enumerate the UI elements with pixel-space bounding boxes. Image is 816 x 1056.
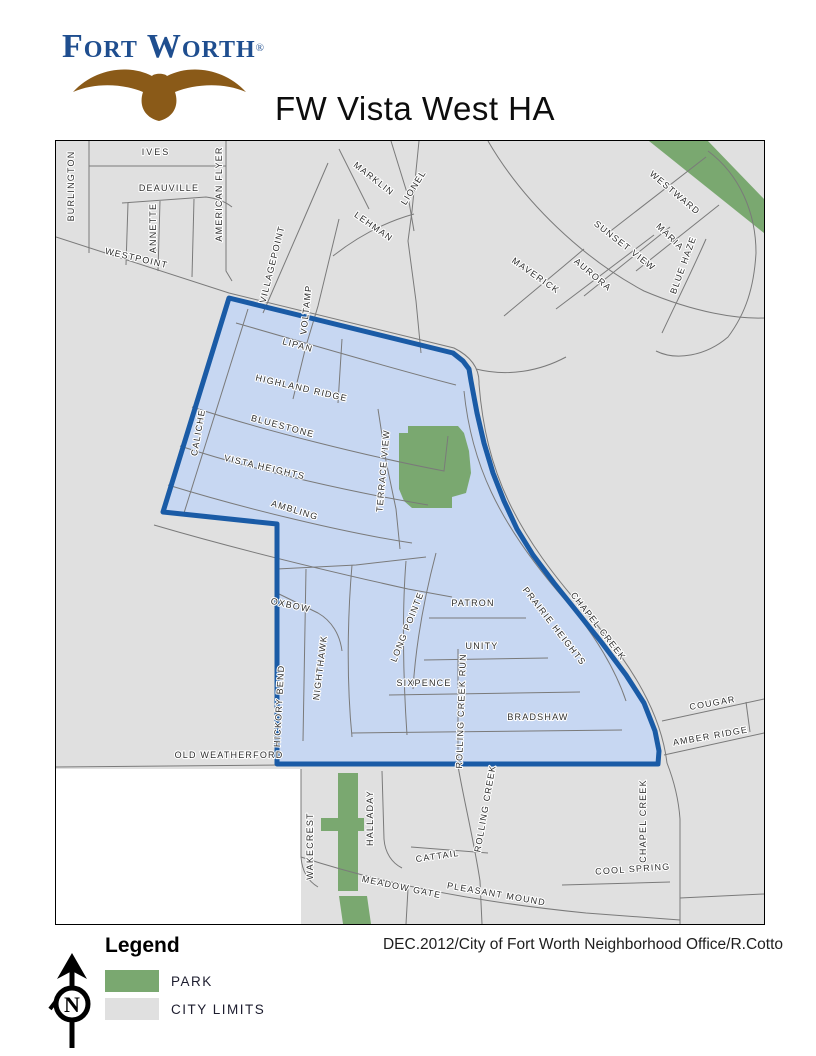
credit-text: DEC.2012/City of Fort Worth Neighborhood… (383, 936, 783, 954)
street-label-wakecrest: WAKECREST (305, 812, 315, 879)
neighborhood-map: BURLINGTONIVESDEAUVILLEANNETTEAMERICAN F… (56, 141, 764, 924)
legend-swatch (105, 998, 159, 1020)
compass-letter: N (64, 992, 80, 1017)
park-halladay-arm (321, 818, 364, 831)
map-frame: BURLINGTONIVESDEAUVILLEANNETTEAMERICAN F… (55, 140, 765, 925)
street-label-burlington: BURLINGTON (66, 151, 76, 222)
north-arrow: N (45, 952, 101, 1052)
logo-wordmark: Fort Worth (62, 28, 256, 65)
street-label-deauville: DEAUVILLE (139, 183, 199, 193)
legend-label: CITY LIMITS (171, 1002, 265, 1017)
legend-label: PARK (171, 974, 213, 989)
fort-worth-logo: Fort Worth® (62, 30, 282, 64)
street-label-chapel-creek: CHAPEL CREEK (638, 779, 648, 863)
legend-swatch (105, 970, 159, 992)
legend-heading: Legend (105, 934, 265, 958)
street-label-sixpence: SIXPENCE (396, 678, 451, 688)
street-label-old-weatherford: OLD WEATHERFORD (175, 750, 284, 760)
street-label-bradshaw: BRADSHAW (507, 712, 568, 722)
street-label-unity: UNITY (466, 641, 499, 651)
page: { "header": { "logo": { "text": "Fort Wo… (0, 0, 816, 1056)
street-label-halladay: HALLADAY (365, 790, 375, 846)
registered-mark: ® (256, 42, 264, 54)
outside-city-area (56, 769, 301, 924)
legend: Legend PARKCITY LIMITS (105, 934, 265, 1026)
page-title: FW Vista West HA (180, 90, 650, 128)
street-label-american-flyer: AMERICAN FLYER (214, 146, 224, 241)
street-label-patron: PATRON (451, 598, 494, 608)
street-label-annette: ANNETTE (148, 203, 158, 253)
legend-item-park: PARK (105, 970, 265, 992)
street-label-ives: IVES (142, 147, 171, 157)
legend-rows: PARKCITY LIMITS (105, 970, 265, 1020)
legend-item-city-limits: CITY LIMITS (105, 998, 265, 1020)
park-meadow-gate (339, 896, 371, 924)
